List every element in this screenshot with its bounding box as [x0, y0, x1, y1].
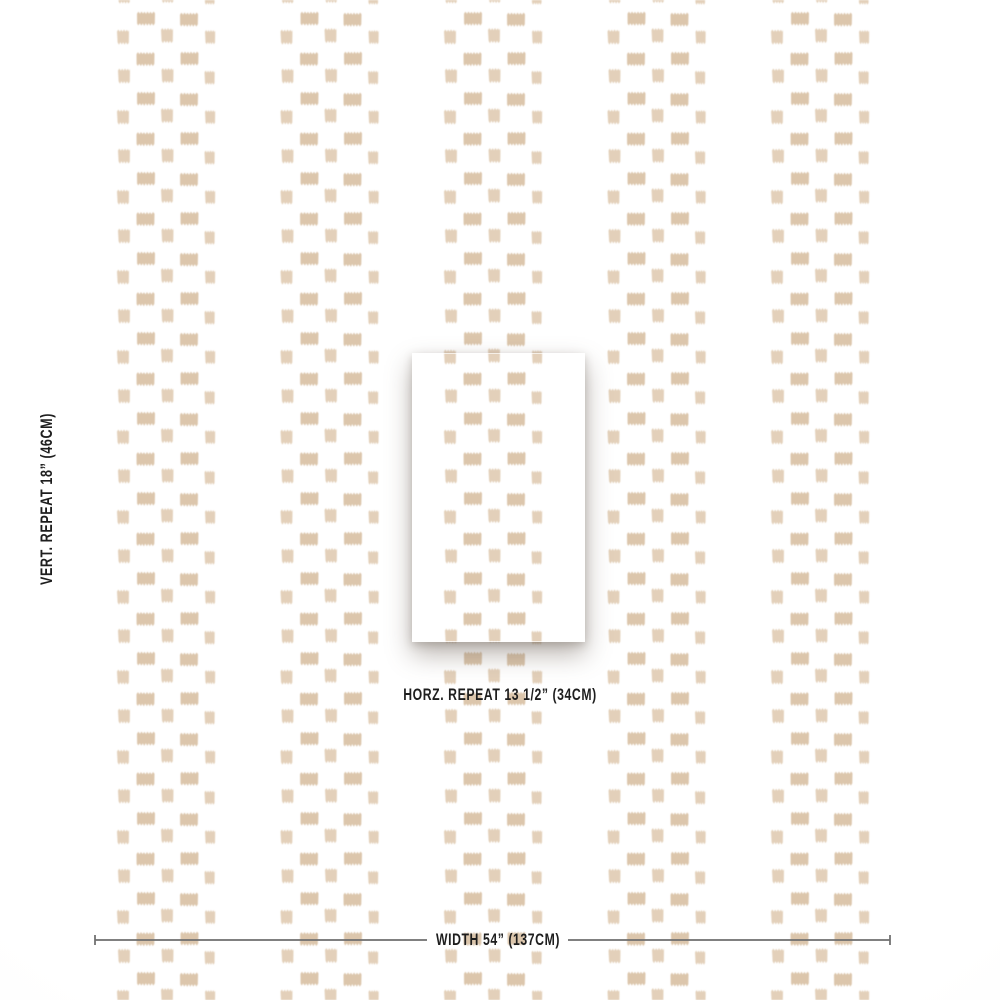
width-label: WIDTH 54” (137CM) — [436, 930, 560, 950]
width-measure-tick-right — [889, 935, 891, 945]
repeat-swatch-card — [412, 353, 585, 642]
vertical-repeat-label: VERT. REPEAT 18” (46CM) — [37, 413, 57, 585]
horizontal-repeat-label: HORZ. REPEAT 13 1/2” (34CM) — [403, 685, 597, 705]
width-measure-line-left — [95, 939, 427, 941]
fabric-product-image: VERT. REPEAT 18” (46CM) HORZ. REPEAT 13 … — [0, 0, 1000, 1000]
width-measure-line-right — [568, 939, 890, 941]
